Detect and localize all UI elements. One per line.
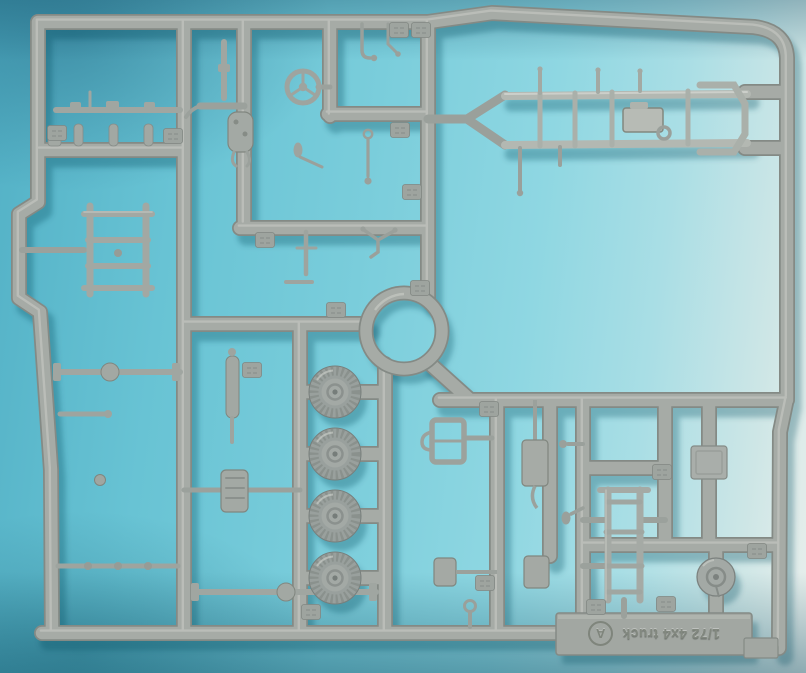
- road-wheel-part: [309, 428, 361, 480]
- leaf-spring-part: [58, 562, 178, 570]
- chassis-ladder-frame-part: [428, 66, 747, 196]
- hub-cap-part: [95, 475, 106, 486]
- front-axle-part: [53, 363, 180, 381]
- photo-model-kit-sprue: 1/72 4x4 truck A: [0, 0, 806, 673]
- rear-view-mirror-part: [294, 143, 323, 168]
- exhaust-pipe-part: [226, 348, 239, 442]
- road-wheel-part: [309, 366, 361, 418]
- hand-brake-lever-part: [364, 130, 372, 185]
- brake-drum-part: [697, 558, 735, 597]
- transfer-case-part: [184, 470, 300, 512]
- mounting-plate-part: [691, 446, 727, 479]
- drive-shaft-part: [56, 92, 180, 110]
- road-wheel-part: [309, 490, 361, 542]
- sprue-artwork: [0, 0, 806, 673]
- radiator-part: [422, 420, 492, 462]
- bottom-marking-bar: [556, 613, 778, 658]
- road-wheel-part: [309, 552, 361, 604]
- tow-hook-part: [465, 601, 476, 628]
- tie-rod-part: [60, 410, 112, 418]
